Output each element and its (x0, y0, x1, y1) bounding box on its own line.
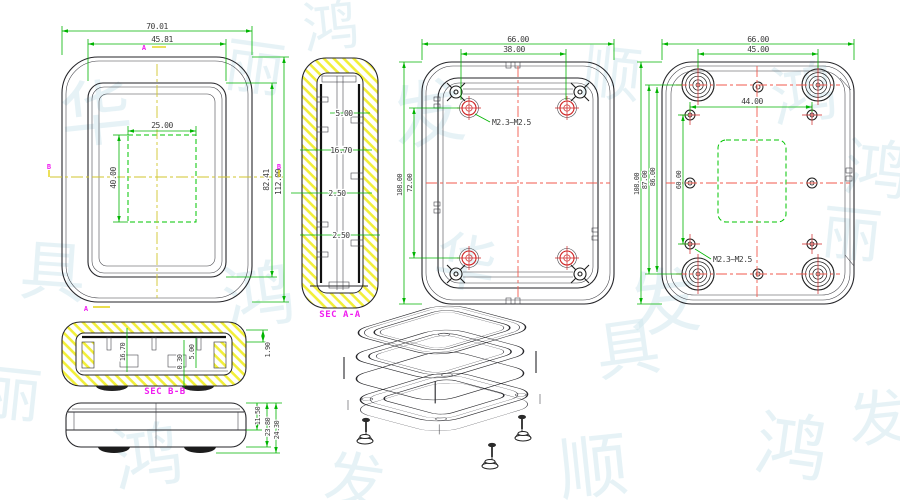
dim-feet-span-y: 87.00 (641, 170, 649, 189)
watermark-glyph: 具 (591, 310, 665, 392)
watermark-glyph: 鸿 (107, 412, 188, 500)
dim-hole-span-x: 44.00 (741, 97, 763, 106)
section-bb-view: 16.70 0.30 5.00 1.90 SEC B-B (62, 322, 272, 397)
dim-back-inner-height: 108.00 (396, 174, 404, 197)
thread-label-back-inner: M2.3~M2.5 (492, 118, 532, 127)
dim-feet-span-x: 45.00 (747, 45, 769, 54)
section-marker-b-right: B (277, 163, 281, 171)
watermark-glyph: 发 (320, 443, 389, 500)
section-marker-a-bottom: A (84, 305, 89, 313)
exploded-plate-top (348, 370, 540, 425)
dim-back-outer-width: 66.00 (747, 35, 769, 44)
dim-hole-span-y: 60.00 (675, 170, 683, 189)
screw (519, 415, 526, 432)
dim-sec-aa-mid: 16.70 (330, 146, 352, 155)
dim-sec-bb-depth: 16.70 (119, 342, 127, 361)
section-marker-b-left: B (47, 163, 51, 171)
watermark-glyph: 顺 (554, 423, 632, 500)
dim-side-body: 23.80 (264, 417, 272, 436)
watermark-glyph: 鸿 (300, 0, 362, 63)
watermark-glyph: 发 (385, 67, 471, 162)
watermark-glyph: 鸿 (750, 401, 833, 494)
rubber-foot (515, 432, 531, 442)
watermark-glyph: 具 (17, 232, 88, 313)
screw-post (571, 265, 589, 283)
dim-side-top: 11.50 (254, 406, 262, 425)
section-bb-label: SEC B-B (144, 387, 186, 397)
dim-front-bezel-height: 82.41 (262, 169, 271, 191)
section-marker-a-top: A (142, 44, 147, 52)
dim-back-outer-height: 108.00 (633, 173, 641, 196)
dim-boss-span-y: 72.00 (406, 173, 414, 192)
foot-profile (182, 386, 214, 391)
dim-front-outer-width: 70.01 (146, 22, 168, 31)
dim-boss-span-x: 38.00 (503, 45, 525, 54)
dim-cutout-height: 40.00 (109, 167, 118, 189)
screen-cutout-outline (128, 135, 196, 222)
screw (363, 418, 370, 435)
dim-back-inner-width: 66.00 (507, 35, 529, 44)
screw (489, 443, 496, 460)
inner-pocket-outline (718, 140, 786, 222)
watermark-layer: 华 丽 发 顺 鸿 具 鸿 华 发 丽 鸿 发 顺 鸿 具 鸿 发 丽 鸿 (0, 0, 900, 500)
dim-sec-aa-wall1: 2.50 (328, 189, 346, 198)
watermark-glyph: 鸿 (841, 131, 900, 211)
dim-front-bezel-width: 45.81 (151, 35, 173, 44)
cad-drawing-canvas: 华 丽 发 顺 鸿 具 鸿 华 发 丽 鸿 发 顺 鸿 具 鸿 发 丽 鸿 70… (0, 0, 900, 500)
dim-sec-bb-lip: 1.90 (264, 342, 272, 357)
watermark-glyph: 发 (845, 382, 900, 458)
cad-drawing-page: 华 丽 发 顺 鸿 具 鸿 华 发 丽 鸿 发 顺 鸿 具 鸿 发 丽 鸿 70… (0, 0, 900, 500)
section-aa-label: SEC A-A (319, 310, 361, 320)
dim-side-total: 24.30 (273, 420, 281, 439)
foot-profile (96, 386, 128, 391)
dim-sec-aa-wall2: 2.50 (332, 231, 350, 240)
screw-boss (555, 96, 579, 120)
section-aa-view: 5.00 16.70 2.50 2.50 SEC A-A (291, 58, 380, 320)
dim-sec-aa-top: 5.00 (335, 109, 353, 118)
watermark-glyph: 丽 (220, 30, 289, 108)
rubber-foot (184, 447, 216, 453)
thread-label-back-outer: M2.3~M2.5 (713, 255, 753, 264)
screw-boss (555, 246, 579, 270)
exploded-view (344, 303, 540, 469)
dim-center-span-y: 86.00 (649, 167, 657, 186)
watermark-glyph: 丽 (0, 357, 45, 433)
rubber-foot (357, 435, 373, 445)
dim-cutout-width: 25.00 (151, 121, 173, 130)
dim-sec-bb-gap: 0.30 (176, 354, 184, 369)
rubber-foot (482, 460, 498, 470)
watermark-glyph: 顺 (578, 37, 645, 113)
dim-sec-bb-boss: 5.00 (188, 344, 196, 359)
